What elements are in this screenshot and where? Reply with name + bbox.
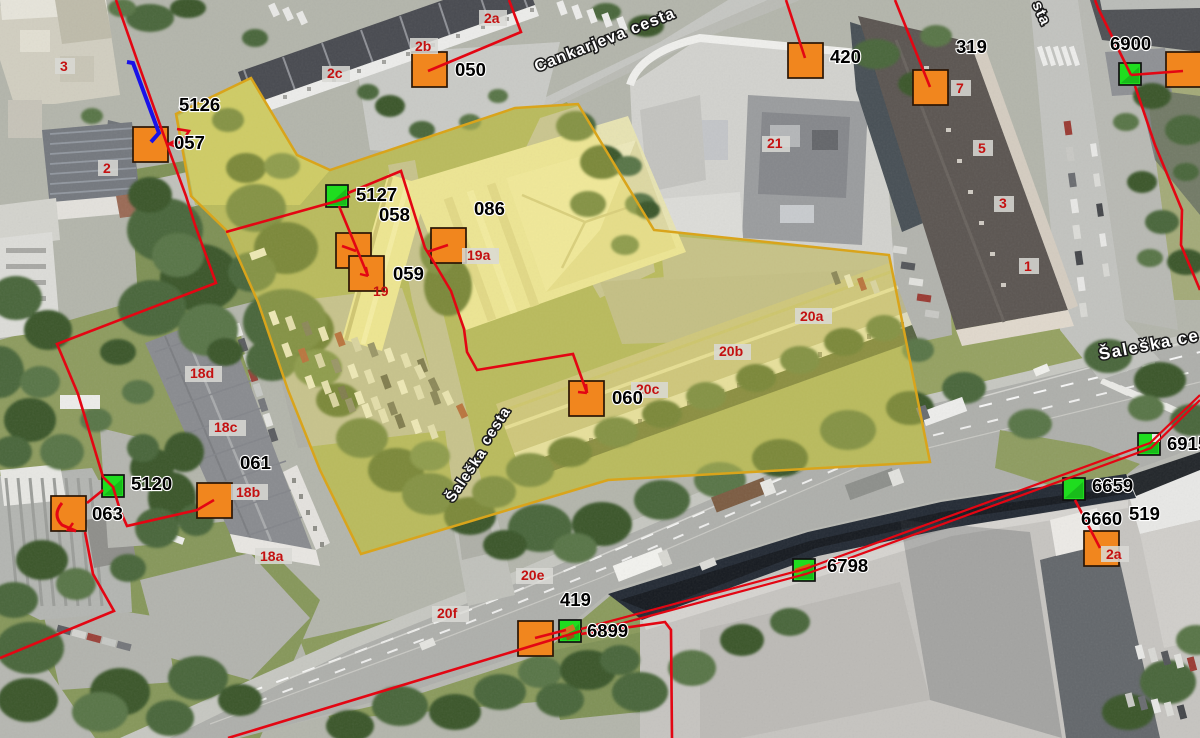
svg-text:7: 7 <box>956 80 964 96</box>
svg-text:063: 063 <box>92 503 123 524</box>
svg-text:20b: 20b <box>719 343 743 359</box>
svg-text:086: 086 <box>474 198 505 219</box>
svg-text:5: 5 <box>978 140 986 156</box>
svg-text:2a: 2a <box>484 10 500 26</box>
svg-text:3: 3 <box>60 58 68 74</box>
svg-text:18b: 18b <box>236 484 260 500</box>
svg-text:5126: 5126 <box>179 94 220 115</box>
svg-text:6659: 6659 <box>1092 475 1133 496</box>
svg-text:18c: 18c <box>214 419 238 435</box>
svg-text:058: 058 <box>379 204 410 225</box>
svg-text:2: 2 <box>103 160 111 176</box>
svg-text:18a: 18a <box>260 548 284 564</box>
svg-text:5120: 5120 <box>131 473 172 494</box>
svg-text:6899: 6899 <box>587 620 628 641</box>
svg-text:20f: 20f <box>437 605 458 621</box>
svg-text:061: 061 <box>240 452 271 473</box>
svg-text:5127: 5127 <box>356 184 397 205</box>
svg-text:3: 3 <box>999 195 1007 211</box>
svg-text:2c: 2c <box>327 65 343 81</box>
svg-text:19: 19 <box>373 283 389 299</box>
svg-text:19a: 19a <box>467 247 491 263</box>
svg-text:20e: 20e <box>521 567 545 583</box>
svg-text:057: 057 <box>174 132 205 153</box>
svg-text:6660: 6660 <box>1081 508 1122 529</box>
svg-text:2b: 2b <box>415 38 431 54</box>
svg-text:420: 420 <box>830 46 861 67</box>
svg-text:319: 319 <box>956 36 987 57</box>
svg-text:20a: 20a <box>800 308 824 324</box>
svg-text:060: 060 <box>612 387 643 408</box>
svg-text:18d: 18d <box>190 365 214 381</box>
svg-text:2a: 2a <box>1106 546 1122 562</box>
svg-text:059: 059 <box>393 263 424 284</box>
svg-text:6900: 6900 <box>1110 33 1151 54</box>
svg-text:6798: 6798 <box>827 555 868 576</box>
svg-text:1: 1 <box>1024 258 1032 274</box>
svg-text:050: 050 <box>455 59 486 80</box>
svg-text:21: 21 <box>767 135 783 151</box>
svg-text:419: 419 <box>560 589 591 610</box>
svg-text:6915: 6915 <box>1167 433 1200 454</box>
svg-text:519: 519 <box>1129 503 1160 524</box>
